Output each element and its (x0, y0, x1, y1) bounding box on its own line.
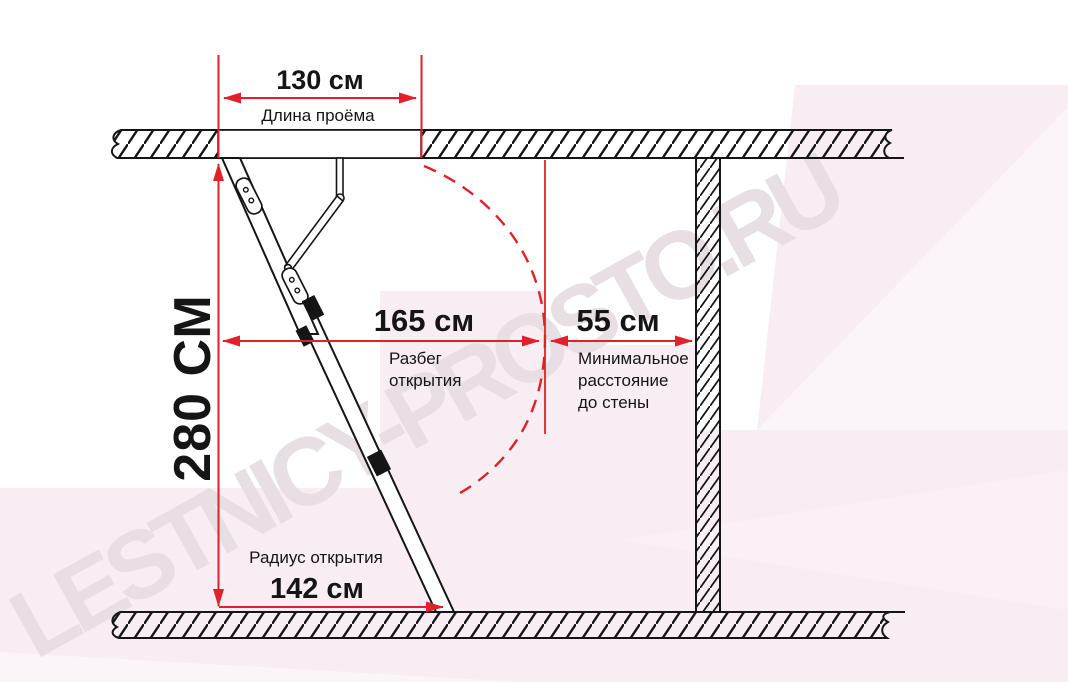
dim-value-opening-length: 130 см (276, 65, 364, 95)
dim-value-ceiling-height: 280 СМ (164, 294, 222, 481)
dim-label-opening-length: Длина проёма (261, 106, 375, 125)
hatch-rod (337, 158, 344, 195)
attic-ladder-diagram: LESTNICY-PROSTO.RU (0, 0, 1068, 682)
dim-label-opening-radius: Радиус открытия (249, 548, 383, 567)
wall-clearance-label-line2: расстояние (578, 371, 669, 390)
floor-slab (112, 612, 890, 638)
floor (112, 612, 905, 638)
ceiling-opening (218, 130, 421, 158)
wall-clearance-label-line3: до стены (578, 393, 649, 412)
dim-value-opening-span: 165 см (374, 303, 475, 338)
opening-span-label-line1: Разбег (389, 349, 442, 368)
diagram-page: LESTNICY-PROSTO.RU (0, 0, 1068, 682)
ceiling (112, 130, 904, 158)
fold-arm (285, 196, 343, 271)
wall (696, 158, 720, 612)
wall-clearance-label-line1: Минимальное (578, 349, 689, 368)
dim-value-wall-clearance: 55 см (576, 303, 659, 338)
dim-value-opening-radius: 142 см (270, 573, 364, 605)
opening-span-label-line2: открытия (389, 371, 461, 390)
